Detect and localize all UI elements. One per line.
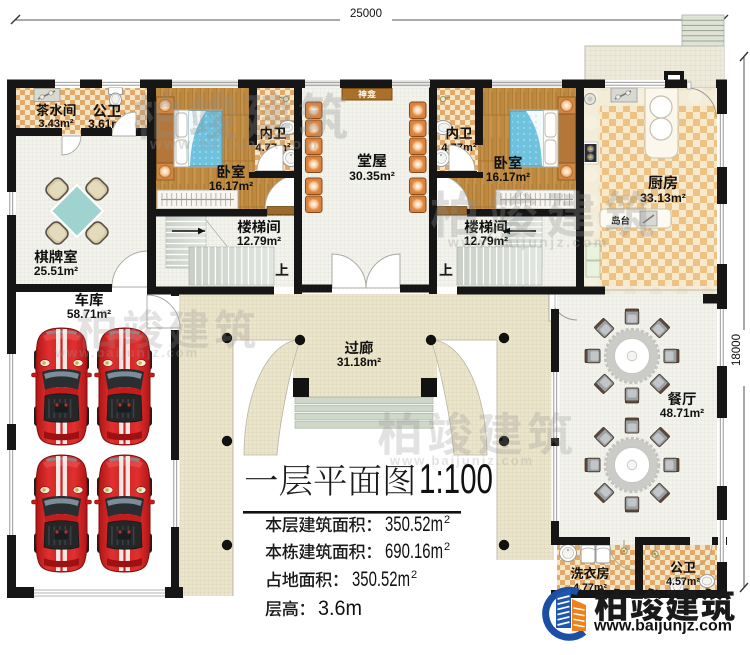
svg-text:www.baijunjz.com: www.baijunjz.com <box>447 234 609 250</box>
svg-text:690.16m: 690.16m <box>385 540 443 563</box>
svg-text:30.35m²: 30.35m² <box>349 169 395 183</box>
svg-text:12.79m²: 12.79m² <box>237 234 281 248</box>
svg-text:16.17m²: 16.17m² <box>209 179 253 193</box>
svg-text:48.71m²: 48.71m² <box>660 406 704 420</box>
svg-text:2: 2 <box>411 569 417 581</box>
svg-text:25000: 25000 <box>350 8 382 20</box>
svg-text:www.baijunjz.com: www.baijunjz.com <box>593 618 732 635</box>
svg-text:31.18m²: 31.18m² <box>337 355 381 369</box>
svg-text:4.57m²: 4.57m² <box>666 576 700 588</box>
svg-text:3.6m: 3.6m <box>318 597 362 620</box>
svg-text:www.baijunjz.com: www.baijunjz.com <box>149 136 319 153</box>
svg-text:www.baijunjz.com: www.baijunjz.com <box>54 345 199 360</box>
svg-text:18000: 18000 <box>731 334 743 366</box>
svg-text:350.52m: 350.52m <box>385 513 443 536</box>
svg-text:25.51m²: 25.51m² <box>34 264 78 278</box>
svg-text:350.52m: 350.52m <box>352 568 410 591</box>
svg-text:2: 2 <box>444 514 450 526</box>
svg-text:2: 2 <box>444 541 450 553</box>
svg-text:16.17m²: 16.17m² <box>486 170 530 184</box>
svg-text:1:100: 1:100 <box>419 455 493 502</box>
